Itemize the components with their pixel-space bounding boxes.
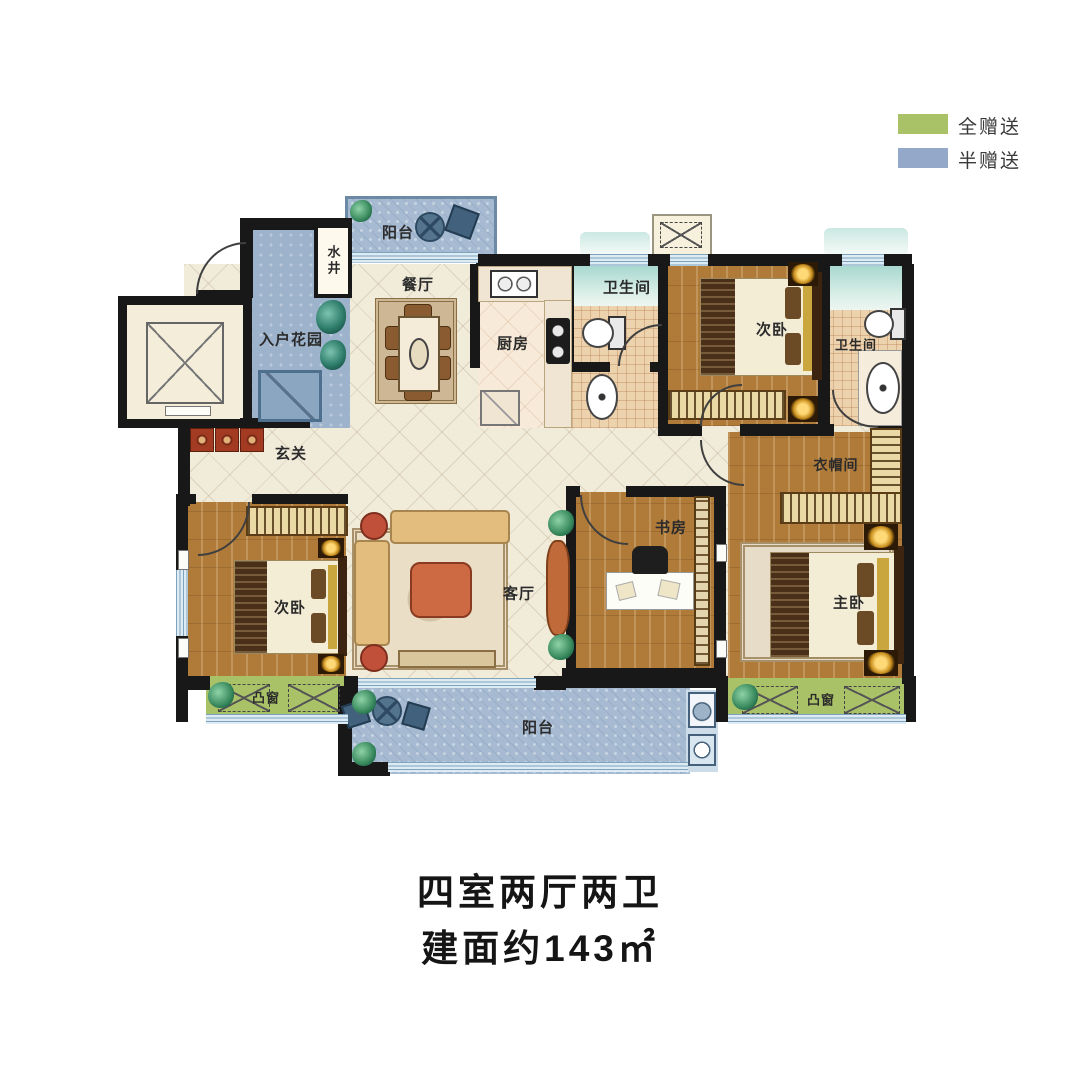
elevator (146, 322, 224, 404)
exterior-window-wash (580, 232, 650, 256)
bed-pillow (785, 287, 801, 319)
window (670, 254, 708, 266)
balcony-round-table (372, 696, 402, 726)
wall (176, 676, 188, 722)
bay-window-hatch (844, 686, 900, 714)
room-label-foyer: 玄关 (275, 443, 307, 464)
plant (548, 634, 574, 660)
side-table (360, 644, 388, 672)
coffee-table (410, 562, 472, 618)
room-label-kitchen: 厨房 (497, 333, 529, 354)
nightstand-lamp (864, 524, 898, 550)
laundry-sink (688, 734, 716, 766)
water-well-label: 水井 (324, 245, 343, 277)
wardrobe (870, 428, 902, 496)
bed-blanket (235, 561, 267, 653)
shower-base (258, 370, 322, 422)
window (388, 762, 688, 772)
window (206, 714, 348, 724)
table-centerpiece (409, 338, 429, 370)
floor-mat (190, 428, 214, 452)
elevator-door-sill (165, 406, 211, 416)
toilet-bowl (582, 318, 614, 348)
legend-swatch-full-gift (898, 114, 948, 134)
wardrobe (780, 492, 902, 524)
bed-blanket (701, 279, 735, 375)
wall (252, 494, 348, 504)
nightstand-lamp (788, 262, 818, 286)
entry-door-arc (196, 242, 246, 294)
tv-cabinet (398, 650, 496, 668)
water-well: 水井 (314, 224, 352, 298)
window (842, 254, 884, 266)
decor-cabinet (546, 540, 570, 636)
legend-swatch-half-gift (898, 148, 948, 168)
room-label-balcony-top: 阳台 (382, 222, 414, 243)
room-label-bay-left: 凸窗 (252, 688, 280, 707)
nightstand-lamp (318, 654, 344, 674)
window (728, 714, 906, 724)
legend: 全赠送 半赠送 (898, 112, 1058, 172)
plant (352, 742, 376, 766)
room-label-master: 主卧 (833, 592, 865, 613)
room-label-bedroom-left: 次卧 (274, 597, 306, 618)
floor-mat (215, 428, 239, 452)
balcony-round-table (415, 212, 445, 242)
caption-area: 建面约143㎡ (0, 918, 1080, 972)
bed-bolster (328, 565, 337, 649)
sofa (390, 510, 510, 544)
stove (546, 318, 570, 364)
bathroom-sink (586, 374, 618, 420)
bed-pillow (311, 613, 326, 643)
window (590, 254, 648, 266)
paper (615, 581, 636, 601)
balcony-bottom-floor (350, 686, 690, 774)
headboard (812, 272, 822, 380)
floor-mat (240, 428, 264, 452)
caption-layout: 四室两厅两卫 (0, 862, 1080, 916)
window-jamb (716, 640, 727, 658)
plant (352, 690, 376, 714)
nightstand-lamp (318, 538, 344, 558)
wall (716, 676, 728, 722)
paper (657, 579, 680, 600)
bed-pillow (857, 611, 874, 645)
nightstand-lamp (788, 396, 818, 422)
headboard (894, 546, 904, 664)
bay-window-hatch (288, 684, 340, 712)
bed-bolster (877, 558, 889, 652)
desk-chair (632, 546, 668, 574)
plant (732, 684, 758, 710)
washing-machine (688, 692, 716, 728)
window (176, 570, 188, 636)
headboard (338, 556, 347, 656)
room-label-balcony-bottom: 阳台 (522, 717, 554, 738)
room-label-bathroom-top: 卫生间 (603, 277, 651, 298)
window (348, 252, 478, 263)
room-label-cloakroom: 衣帽间 (814, 455, 859, 475)
room-label-living: 客厅 (503, 583, 535, 604)
legend-label-half-gift: 半赠送 (958, 146, 1021, 173)
plant (350, 200, 372, 222)
ac-platform-hatch (660, 222, 702, 248)
room-label-bedroom-top: 次卧 (756, 319, 788, 340)
room-label-bay-right: 凸窗 (807, 690, 835, 709)
window-jamb (716, 544, 727, 562)
desk (606, 572, 694, 610)
nightstand-lamp (864, 650, 898, 676)
window (358, 678, 536, 688)
bathroom-right-window-wash (824, 266, 904, 310)
room-label-study: 书房 (655, 517, 687, 538)
wall (658, 424, 702, 436)
plant (208, 682, 234, 708)
sofa (354, 540, 390, 646)
room-label-entry-garden: 入户花园 (259, 329, 323, 350)
window-jamb (178, 638, 189, 658)
kitchen-cabinet (480, 390, 520, 426)
bookshelf (694, 496, 710, 666)
window-jamb (178, 550, 189, 570)
kitchen-sink (490, 270, 538, 298)
side-table (360, 512, 388, 540)
wall (740, 424, 834, 436)
plant (548, 510, 574, 536)
bed-pillow (311, 569, 326, 599)
room-label-dining: 餐厅 (402, 274, 434, 295)
plant (320, 340, 346, 370)
wall (562, 668, 720, 688)
exterior-window-wash (824, 228, 908, 256)
ac-platform (652, 214, 712, 258)
legend-label-full-gift: 全赠送 (958, 112, 1021, 139)
wardrobe (246, 506, 348, 536)
room-label-bathroom-right: 卫生间 (835, 335, 877, 354)
bed-blanket (771, 553, 809, 657)
